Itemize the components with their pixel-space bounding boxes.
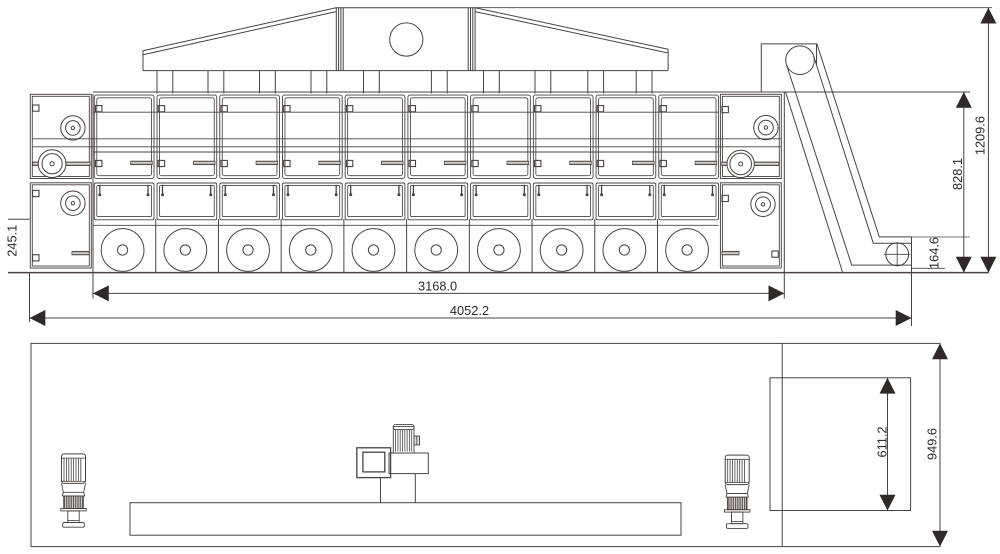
svg-text:949.6: 949.6 [925,428,940,460]
svg-text:828.1: 828.1 [950,158,965,190]
svg-text:3168.0: 3168.0 [418,278,457,293]
svg-text:611.2: 611.2 [875,426,890,457]
svg-text:4052.2: 4052.2 [450,303,489,318]
svg-text:245.1: 245.1 [5,225,20,257]
svg-text:1209.6: 1209.6 [973,116,988,155]
svg-text:164.6: 164.6 [927,237,942,269]
